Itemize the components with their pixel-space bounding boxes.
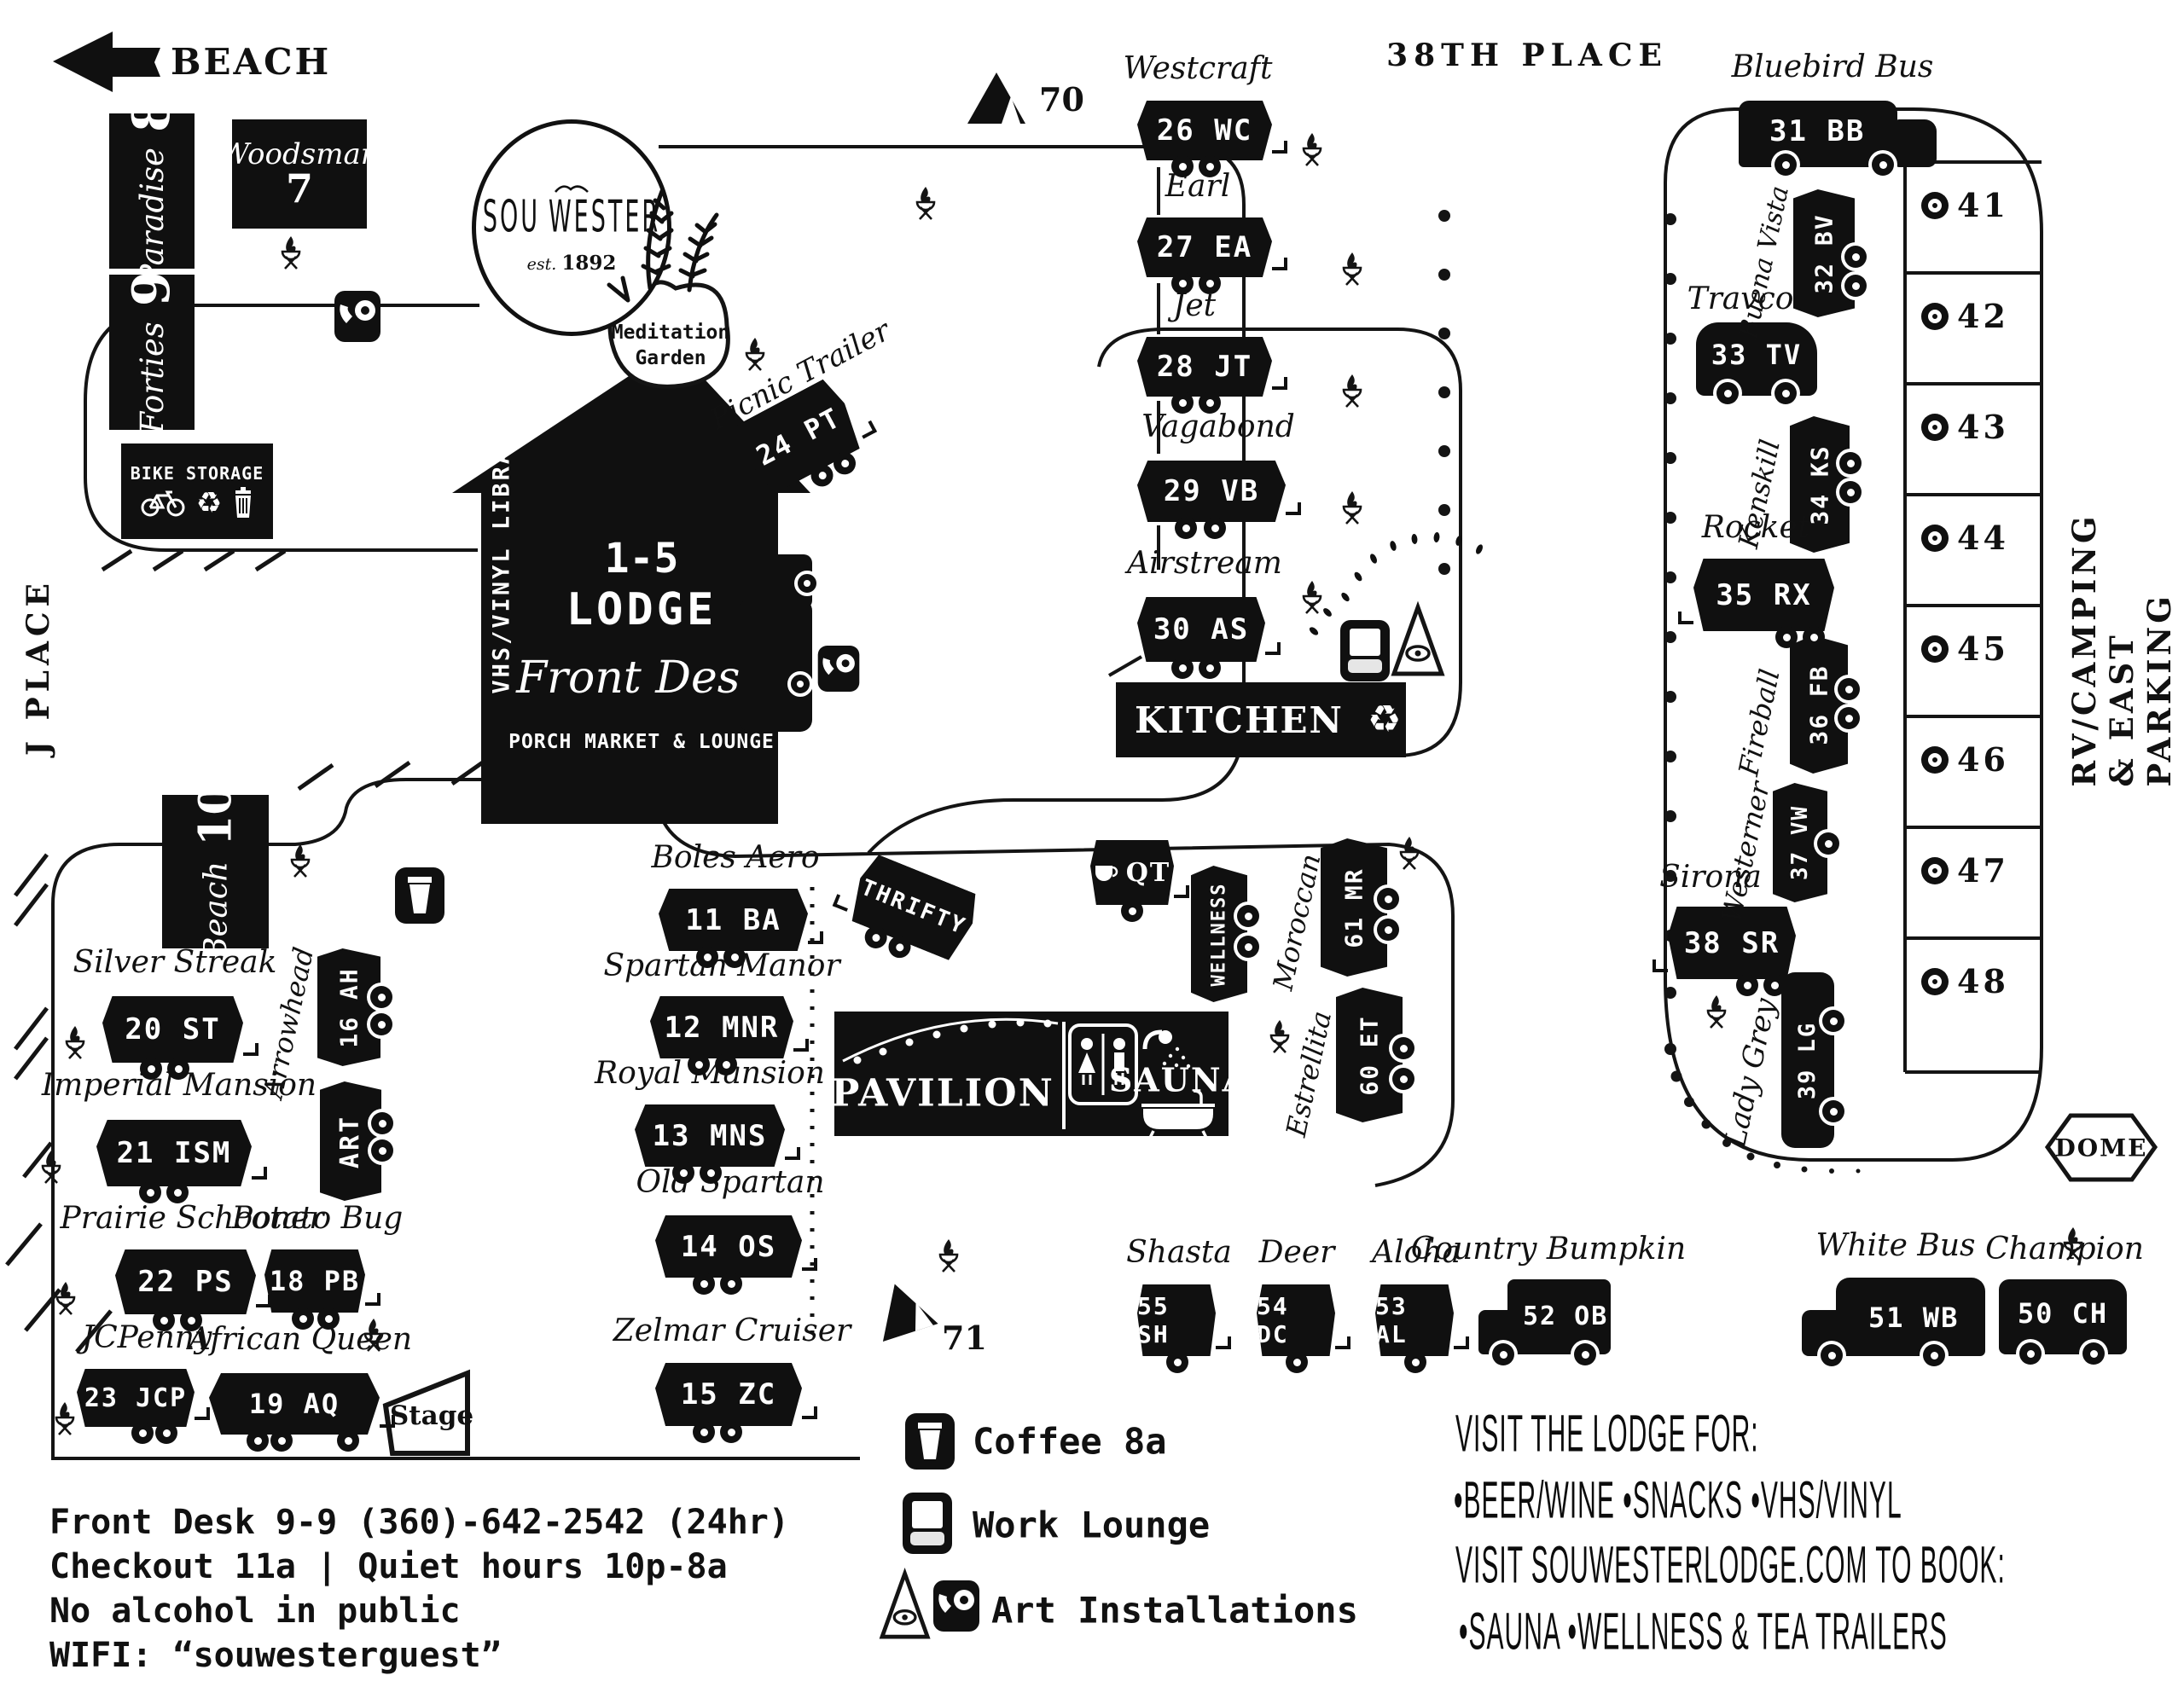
trailer-airstream: 30 AS (1137, 597, 1265, 662)
van-champion: 50 CH (1999, 1279, 2127, 1358)
hookup-icon (1921, 968, 1949, 995)
promo-line-2: •BEER/WINE •SNACKS •VHS/VINYL (1454, 1472, 1902, 1532)
cabin-woodsman-number: 7 (286, 169, 313, 208)
trailer-old-spartan: 14 OS (655, 1215, 802, 1278)
phone-icon (933, 1580, 979, 1632)
trash-icon (232, 487, 254, 519)
trailer-african-queen: 19 AQ (209, 1373, 380, 1435)
souwester-campground-map: BEACH 38TH PLACE J PLACE RV/CAMPING & EA… (0, 0, 2184, 1687)
eye-pyramid-icon (882, 1574, 927, 1637)
trailer-jet: 28 JT (1137, 337, 1272, 397)
tent-71-label: 71 (942, 1319, 987, 1357)
trailer-potato-bug: 18 PB (264, 1249, 365, 1313)
label-estrellita: Estrellita (1280, 1008, 1338, 1139)
trailer-spartan-manor: 12 MNR (650, 996, 793, 1058)
bicycle-icon (140, 489, 186, 518)
trailer-boles-aero: 11 BA (659, 889, 808, 951)
coffee-icon (905, 1413, 955, 1470)
logo-sou: SOU (483, 193, 540, 243)
bike-storage-label: BIKE STORAGE (131, 463, 264, 484)
tent-70-icon (967, 72, 1025, 124)
souwester-logo: SOUWESTER est. 1892 (472, 119, 671, 336)
teacup-icon (1094, 862, 1119, 883)
label-boles-aero: Boles Aero (651, 840, 819, 875)
recycle-icon: ♻ (196, 489, 222, 518)
info-checkout: Checkout 11a | Quiet hours 10p-8a (49, 1547, 728, 1586)
street-rv-camping: RV/CAMPING & EAST PARKING (2065, 513, 2178, 786)
cabin-beach-number: 10 (189, 784, 241, 845)
micro-theatre-label-1: Micro (747, 633, 772, 697)
dome-label: DOME (2054, 1134, 2147, 1162)
cabin-woodsman: Woodsman 7 (232, 119, 367, 229)
street-beach: BEACH (171, 41, 331, 83)
trailer-art: ART (320, 1081, 381, 1201)
legend-coffee-label: Coffee 8a (973, 1421, 1167, 1463)
promo-line-1: VISIT THE LODGE FOR: (1455, 1406, 1759, 1465)
legend-art-installations-label: Art Installations (991, 1590, 1358, 1632)
trailer-zelmar-cruiser: 15 ZC (655, 1363, 802, 1426)
cabin-forties: Forties 9 (109, 275, 195, 430)
hookup-icon (1921, 857, 1949, 884)
meditation-garden-label-2: Garden (635, 347, 706, 369)
lodge-name: LODGE (566, 584, 717, 635)
trailer-fireball: 36 FB (1790, 635, 1848, 774)
micro-theatre-label-2: Theatre 5-9p (775, 588, 799, 743)
micro-theatre: Micro Theatre 5-9p (729, 597, 818, 733)
laptop-icon (1340, 620, 1390, 681)
lodge-library-label: VHS/VINYL LIBRARY (489, 415, 515, 693)
meditation-garden-label-1: Meditation (612, 322, 729, 344)
logo-est: est. (527, 255, 557, 274)
parking-stall-41: 41 (1921, 186, 2009, 224)
label-zelmar-cruiser: Zelmar Cruiser (613, 1313, 851, 1348)
info-wifi: WIFI: “souwesterguest” (49, 1636, 502, 1675)
cabin-forties-number: 9 (122, 271, 182, 307)
label-champion: Champion (1985, 1232, 2144, 1267)
label-spartan-manor: Spartan Manor (603, 948, 839, 983)
stage-label: Stage (390, 1400, 473, 1431)
trailer-imperial-mansion: 21 ISM (96, 1120, 252, 1186)
trailer-shasta: 55 SH (1137, 1284, 1216, 1356)
hookup-icon (1921, 414, 1949, 441)
trailer-thrifty: THRIFTY (844, 851, 983, 963)
phone-icon (818, 646, 860, 692)
bus-lady-grey: 39 LG (1781, 972, 1834, 1148)
trailer-deer: 54 DC (1257, 1284, 1335, 1356)
trailer-westerner: 37 VW (1773, 783, 1827, 902)
bus-bluebird: 31 BB (1739, 96, 1937, 169)
parking-stall-44: 44 (1921, 519, 2009, 557)
label-moroccan: Moroccan (1267, 851, 1327, 993)
bike-storage: BIKE STORAGE ♻ (121, 443, 273, 539)
label-potato-bug: Potato Bug (232, 1201, 404, 1236)
parking-stall-48: 48 (1921, 962, 2009, 1000)
label-westcraft: Westcraft (1124, 51, 1273, 86)
label-sirona: Sirona (1659, 860, 1762, 895)
street-j-place: J PLACE (20, 578, 56, 756)
laptop-icon (903, 1493, 952, 1554)
tent-71-icon (867, 1275, 938, 1342)
hookup-icon (1921, 303, 1949, 330)
promo-line-3: VISIT SOUWESTERLODGE.COM TO BOOK: (1455, 1537, 2006, 1597)
cabin-paradise-name: Paradise (134, 148, 171, 285)
street-38th-place: 38TH PLACE (1386, 38, 1668, 73)
label-buena-vista: Buena Vista (1734, 183, 1795, 341)
label-travco: Travco (1687, 281, 1794, 316)
lodge-porch-market: PORCH MARKET & LOUNGE (508, 731, 775, 753)
promo-line-4: •SAUNA •WELLNESS & TEA TRAILERS (1459, 1603, 1948, 1663)
label-shasta: Shasta (1126, 1235, 1232, 1270)
trailer-royal-mansion: 13 MNS (635, 1104, 785, 1167)
tent-70-label: 70 (1039, 80, 1084, 119)
bus-white-bus: 51 WB (1802, 1276, 1985, 1361)
label-country-bumpkin: Country Bumpkin (1411, 1232, 1686, 1267)
label-rocket: Rocket (1702, 510, 1810, 545)
eye-pyramid-icon (1394, 607, 1442, 674)
info-alcohol: No alcohol in public (49, 1591, 461, 1631)
trailer-qt: QT (1090, 840, 1174, 905)
coffee-icon (395, 867, 444, 924)
logo-wester: WESTER (549, 193, 660, 243)
label-deer: Deer (1259, 1235, 1335, 1270)
label-fireball: Fireball (1732, 666, 1786, 779)
trailer-estrellita: 60 ET (1336, 988, 1403, 1122)
footprints (1308, 532, 1484, 637)
trailer-aloha: 53 AL (1375, 1284, 1454, 1356)
label-royal-mansion: Royal Mansion (595, 1056, 825, 1091)
cabin-forties-name: Forties (134, 322, 171, 433)
kitchen: KITCHEN ♻ (1116, 682, 1406, 757)
cabin-woodsman-name: Woodsman (219, 140, 379, 169)
label-vagabond: Vagabond (1141, 409, 1295, 444)
hookup-icon (1921, 746, 1949, 774)
cabin-paradise: Paradise 8 (109, 113, 195, 269)
cabin-beach: Beach 10 (162, 795, 269, 948)
trailer-vagabond: 29 VB (1137, 461, 1286, 522)
phone-icon (334, 291, 380, 342)
trailer-wellness: WELLNESS (1191, 866, 1247, 1002)
trailer-jcpenny: 23 JCP (77, 1369, 195, 1427)
trailer-westcraft: 26 WC (1137, 101, 1272, 160)
trailer-buena-vista: 32 BV (1793, 189, 1855, 317)
kitchen-label: KITCHEN (1135, 699, 1344, 741)
truck-country-bumpkin: 52 OB (1478, 1279, 1611, 1360)
info-front-desk: Front Desk 9-9 (360)-642-2542 (24hr) (49, 1503, 789, 1542)
label-lady-grey: Lady Grey (1718, 995, 1783, 1151)
label-silver-streak: Silver Streak (73, 945, 277, 980)
beach-arrow-icon (53, 32, 160, 92)
parking-stall-45: 45 (1921, 629, 2009, 668)
trailer-silver-streak: 20 ST (102, 996, 243, 1063)
parking-stall-43: 43 (1921, 408, 2009, 446)
label-old-spartan: Old Spartan (636, 1165, 824, 1200)
label-airstream: Airstream (1127, 546, 1282, 581)
trailer-earl: 27 EA (1137, 217, 1272, 277)
parking-stall-46: 46 (1921, 740, 2009, 779)
label-westerner: Westerner (1715, 779, 1776, 925)
recycle-icon: ♻ (1368, 701, 1401, 739)
parking-stall-47: 47 (1921, 851, 2009, 890)
cabin-paradise-number: 8 (122, 96, 182, 132)
sauna-label: SAUNA (1109, 1061, 1249, 1099)
label-bluebird-bus: Bluebird Bus (1732, 49, 1934, 84)
parking-stall-42: 42 (1921, 297, 2009, 335)
label-white-bus: White Bus (1815, 1228, 1975, 1263)
hookup-icon (1921, 192, 1949, 219)
trailer-arrowhead: 16 AH (317, 948, 380, 1066)
trailer-moroccan: 61 MR (1321, 838, 1387, 977)
lodge-units: 1-5 (605, 535, 679, 583)
trailer-prairie-schooner: 22 PS (115, 1249, 256, 1314)
trailer-rocket: 35 RX (1693, 559, 1834, 631)
legend-work-lounge-label: Work Lounge (973, 1504, 1210, 1546)
hookup-icon (1921, 635, 1949, 663)
pavilion-label: PAVILION (831, 1072, 1054, 1116)
logo-year: 1892 (561, 252, 616, 275)
hookup-icon (1921, 525, 1949, 552)
